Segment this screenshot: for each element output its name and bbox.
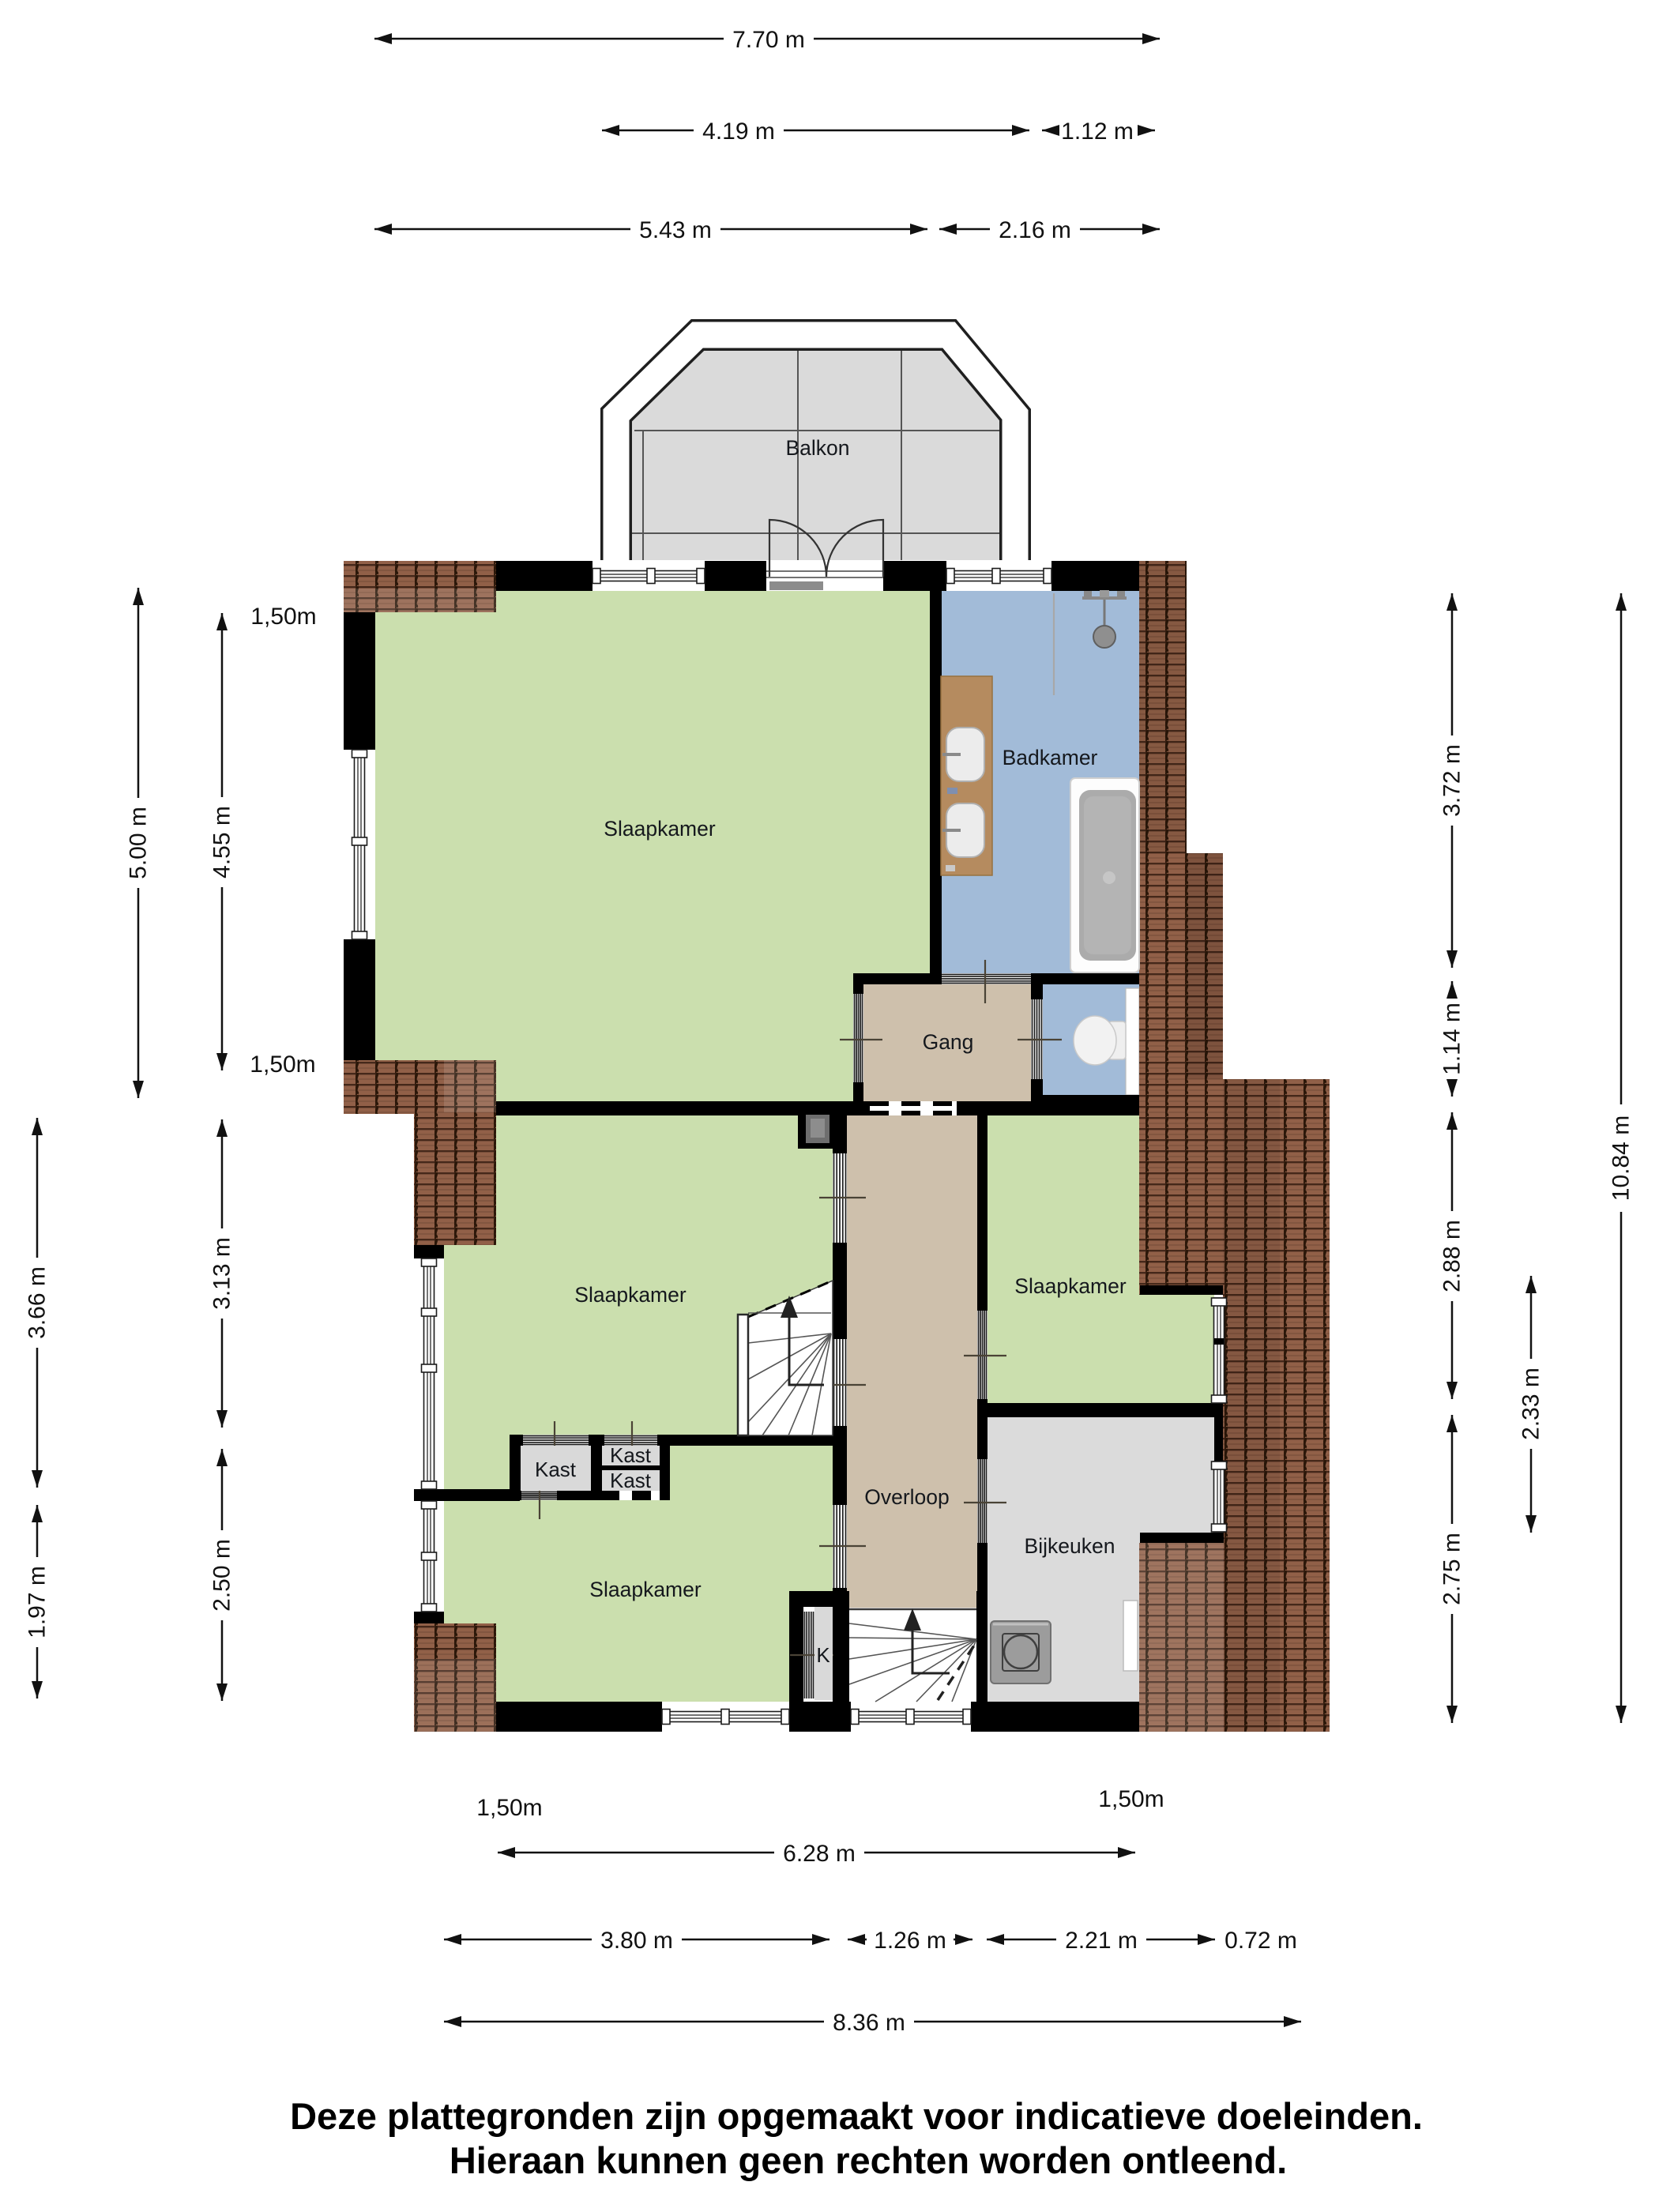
svg-text:K: K [816,1643,830,1667]
svg-text:Bijkeuken: Bijkeuken [1025,1534,1115,1558]
svg-text:Hieraan kunnen geen rechten wo: Hieraan kunnen geen rechten worden ontle… [450,2139,1287,2181]
svg-text:1.14 m: 1.14 m [1439,1003,1465,1075]
svg-text:2.75 m: 2.75 m [1439,1533,1465,1605]
svg-text:5.00 m: 5.00 m [126,807,152,879]
svg-text:7.70 m: 7.70 m [732,27,805,53]
svg-text:2.21 m: 2.21 m [1065,1928,1138,1954]
svg-text:2.33 m: 2.33 m [1518,1367,1544,1440]
svg-text:1,50m: 1,50m [1098,1786,1164,1812]
svg-text:Overloop: Overloop [864,1485,950,1509]
svg-text:1,50m: 1,50m [476,1795,542,1821]
svg-text:Slaapkamer: Slaapkamer [1014,1274,1127,1298]
svg-text:1.26 m: 1.26 m [874,1928,946,1954]
svg-text:3.80 m: 3.80 m [600,1928,673,1954]
svg-text:Kast: Kast [610,1469,652,1492]
svg-text:3.72 m: 3.72 m [1439,744,1465,817]
svg-text:8.36 m: 8.36 m [833,2010,905,2036]
svg-text:Deze plattegronden zijn opgema: Deze plattegronden zijn opgemaakt voor i… [290,2095,1423,2137]
svg-text:Kast: Kast [610,1443,652,1467]
svg-text:Kast: Kast [535,1458,577,1481]
svg-text:3.66 m: 3.66 m [24,1266,51,1339]
svg-text:Gang: Gang [923,1030,974,1054]
svg-text:Slaapkamer: Slaapkamer [589,1578,702,1601]
svg-text:6.28 m: 6.28 m [783,1841,856,1867]
svg-text:5.43 m: 5.43 m [639,217,712,243]
svg-text:1.12 m: 1.12 m [1061,118,1134,145]
svg-text:2.50 m: 2.50 m [209,1539,235,1612]
svg-text:2.16 m: 2.16 m [999,217,1071,243]
svg-text:3.13 m: 3.13 m [209,1237,235,1310]
svg-text:Slaapkamer: Slaapkamer [574,1283,687,1307]
svg-text:1,50m: 1,50m [250,604,316,630]
svg-text:4.19 m: 4.19 m [702,118,775,145]
svg-text:Slaapkamer: Slaapkamer [604,817,716,841]
svg-text:1,50m: 1,50m [250,1051,315,1078]
svg-text:1.97 m: 1.97 m [24,1566,51,1638]
svg-text:Badkamer: Badkamer [1003,746,1098,769]
svg-text:4.55 m: 4.55 m [209,806,235,878]
svg-text:Balkon: Balkon [785,436,849,460]
svg-text:0.72 m: 0.72 m [1224,1928,1297,1954]
svg-text:10.84 m: 10.84 m [1608,1115,1635,1201]
svg-text:2.88 m: 2.88 m [1439,1220,1465,1292]
